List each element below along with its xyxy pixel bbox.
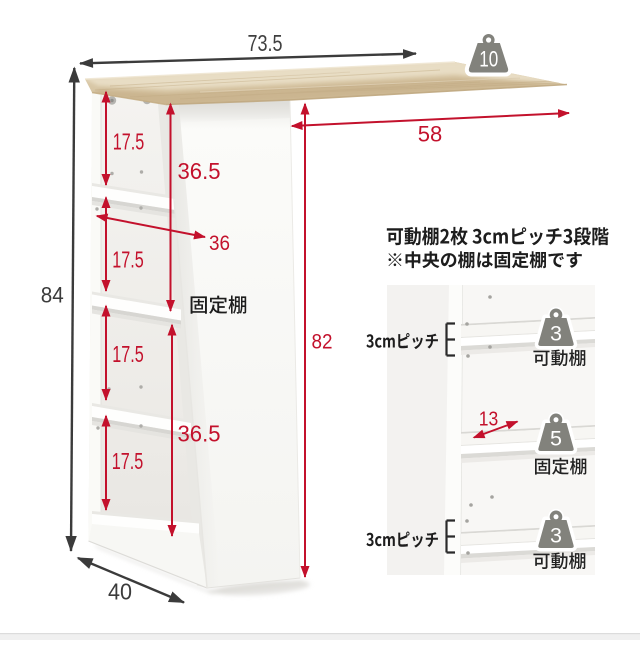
svg-text:10: 10 bbox=[479, 47, 498, 72]
svg-text:3: 3 bbox=[550, 322, 562, 346]
svg-text:36.5: 36.5 bbox=[178, 158, 221, 184]
svg-text:17.5: 17.5 bbox=[112, 341, 144, 367]
svg-text:36: 36 bbox=[209, 231, 230, 255]
svg-text:84: 84 bbox=[41, 283, 64, 308]
svg-text:3: 3 bbox=[550, 524, 562, 548]
svg-text:13: 13 bbox=[479, 409, 499, 431]
svg-text:17.5: 17.5 bbox=[112, 448, 144, 474]
svg-text:82: 82 bbox=[312, 330, 333, 354]
svg-text:5: 5 bbox=[550, 427, 562, 451]
svg-text:73.5: 73.5 bbox=[248, 30, 283, 56]
svg-text:17.5: 17.5 bbox=[113, 129, 145, 155]
svg-text:17.5: 17.5 bbox=[112, 247, 144, 273]
svg-text:36.5: 36.5 bbox=[178, 421, 221, 447]
svg-text:40: 40 bbox=[108, 579, 132, 605]
svg-text:58: 58 bbox=[418, 122, 443, 147]
